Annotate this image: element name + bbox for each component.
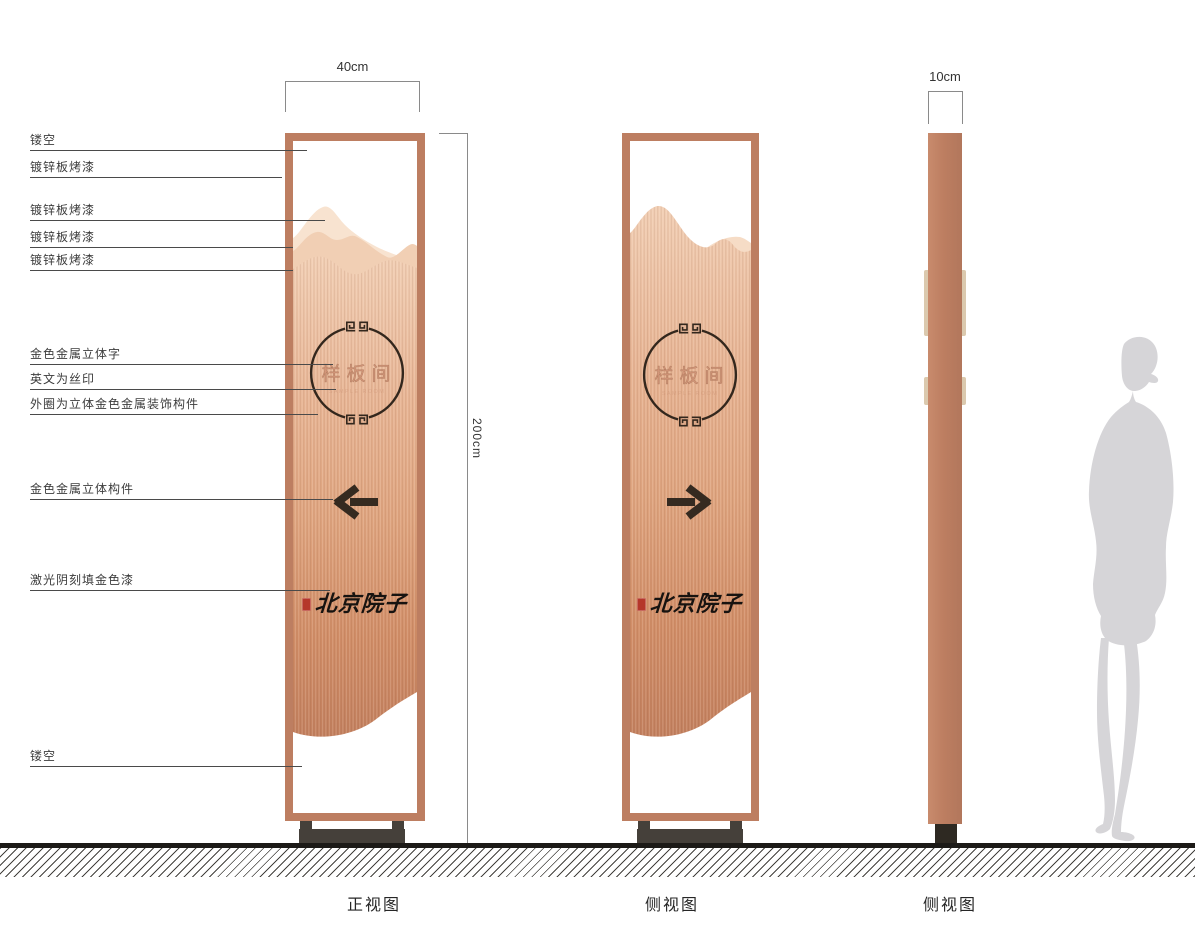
callout-gold-3d-component: 金色金属立体构件	[30, 482, 333, 500]
human-silhouette	[1038, 332, 1188, 847]
callout-label: 镂空	[30, 749, 56, 763]
dim-depth-value: 10cm	[900, 69, 990, 84]
callout-label: 激光阴刻填金色漆	[30, 573, 134, 587]
silhouette-body	[1089, 391, 1174, 645]
callout-label: 外圈为立体金色金属装饰构件	[30, 397, 199, 411]
brand-calligraphy-front: 北京院子	[297, 592, 413, 616]
room-name-en-text: SAMPLE ROOM	[329, 389, 385, 395]
canvas: 镂空 镀锌板烤漆 镀锌板烤漆 镀锌板烤漆 镀锌板烤漆 金色金属立体字 英文为丝印…	[0, 0, 1195, 927]
callout-label: 镀锌板烤漆	[30, 230, 95, 244]
ground-hatch	[0, 848, 1195, 877]
side-stand-bar	[637, 829, 743, 843]
callout-hollow-top: 镂空	[30, 133, 307, 151]
callout-label: 金色金属立体字	[30, 347, 121, 361]
callout-label: 英文为丝印	[30, 372, 95, 386]
brand-text: 北京院子	[315, 592, 409, 616]
callout-hollow-bottom: 镂空	[30, 749, 302, 767]
room-name-text: 样板间	[654, 365, 729, 387]
brand-calligraphy-side: 北京院子	[632, 592, 748, 616]
brand-seal	[302, 598, 311, 611]
view-label-side: 侧视图	[612, 891, 732, 915]
dim-width-value: 40cm	[285, 59, 420, 74]
callout-silkscreen-en: 英文为丝印	[30, 372, 336, 390]
brand-text: 北京院子	[650, 592, 744, 616]
front-view-panel: 样板间 SAMPLE ROOM	[285, 133, 425, 821]
callout-galvanized-4: 镀锌板烤漆	[30, 253, 293, 271]
view-label-front: 正视图	[314, 891, 434, 915]
side-panel-art: 样板间 SAMPLE ROOM	[630, 141, 751, 813]
dim-height-value: 200cm	[470, 418, 484, 459]
wood-grain-overlay	[630, 206, 751, 737]
profile-view-panel	[928, 133, 962, 824]
callout-label: 金色金属立体构件	[30, 482, 134, 496]
dim-height-line	[467, 133, 468, 843]
silhouette-back-leg	[1095, 638, 1115, 833]
front-stand-bar	[299, 829, 405, 843]
ground-line	[0, 843, 1195, 848]
room-name-en-text: SAMPLE ROOM	[662, 391, 718, 397]
dim-depth-bracket	[928, 91, 963, 124]
silhouette-front-leg	[1112, 638, 1140, 841]
callout-label: 镀锌板烤漆	[30, 160, 95, 174]
view-label-profile: 侧视图	[890, 891, 1010, 915]
brand-seal	[637, 598, 646, 611]
callout-galvanized-3: 镀锌板烤漆	[30, 230, 293, 248]
dim-width-bracket	[285, 81, 420, 112]
callout-laser-engraved: 激光阴刻填金色漆	[30, 573, 330, 591]
silhouette-head	[1121, 337, 1158, 391]
profile-stand-base	[935, 824, 957, 844]
callout-label: 镀锌板烤漆	[30, 203, 95, 217]
front-panel-art: 样板间 SAMPLE ROOM	[293, 141, 417, 813]
callout-label: 镂空	[30, 133, 56, 147]
callout-gold-3d-letters: 金色金属立体字	[30, 347, 333, 365]
callout-label: 镀锌板烤漆	[30, 253, 95, 267]
callout-galvanized-1: 镀锌板烤漆	[30, 160, 282, 178]
dim-height-tick	[439, 133, 467, 134]
side-view-panel: 样板间 SAMPLE ROOM	[622, 133, 759, 821]
callout-galvanized-2: 镀锌板烤漆	[30, 203, 325, 221]
callout-gold-ring: 外圈为立体金色金属装饰构件	[30, 397, 318, 415]
